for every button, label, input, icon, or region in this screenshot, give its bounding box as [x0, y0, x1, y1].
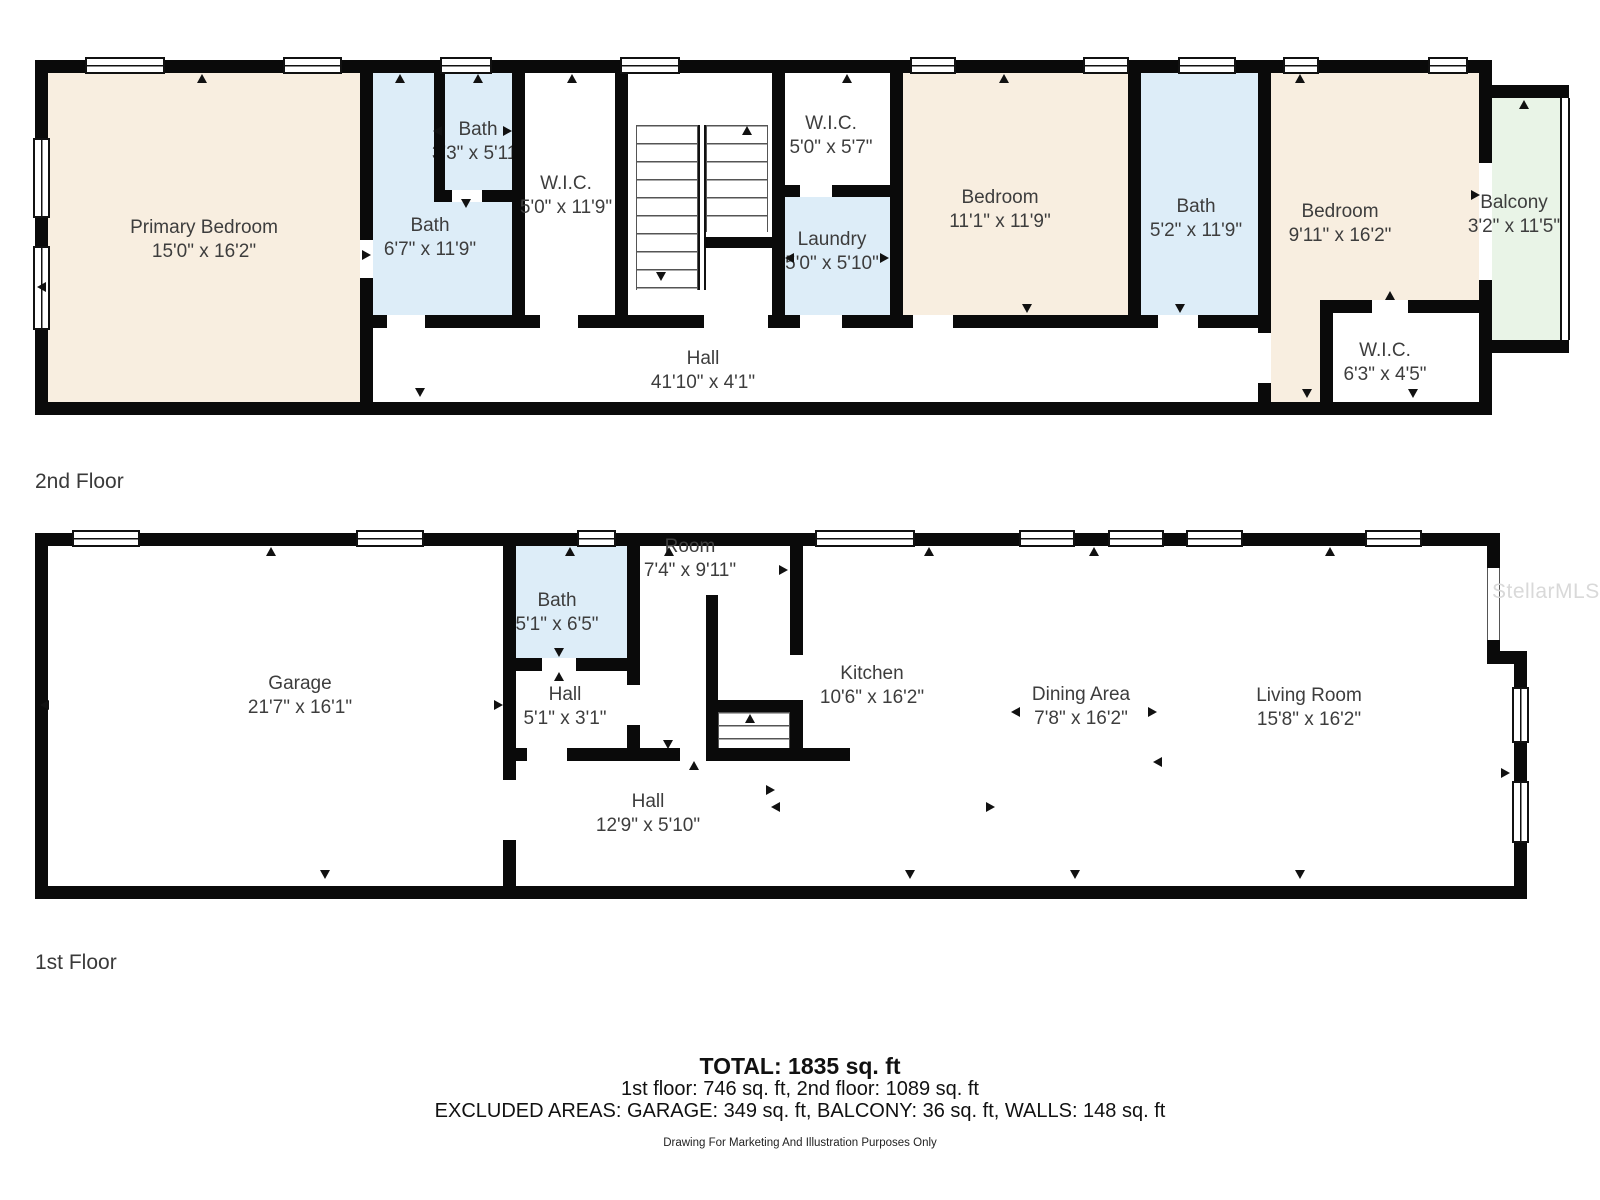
room-dims: 5'0" x 11'9"	[520, 196, 612, 220]
room-name: Bath	[515, 589, 598, 613]
wall	[1492, 340, 1569, 353]
marker-arrow-icon	[494, 700, 503, 710]
room-name: Dining Area	[1032, 683, 1130, 707]
marker-arrow-icon	[1385, 291, 1395, 300]
window	[440, 57, 492, 74]
window	[72, 530, 140, 547]
door-opening	[913, 315, 953, 328]
marker-arrow-icon	[1089, 547, 1099, 556]
marker-arrow-icon	[1471, 190, 1480, 200]
marker-arrow-icon	[320, 870, 330, 879]
marker-arrow-icon	[1153, 757, 1162, 767]
room-label-primary-bedroom: Primary Bedroom15'0" x 16'2"	[130, 216, 278, 264]
marker-arrow-icon	[842, 74, 852, 83]
marker-arrow-icon	[1175, 304, 1185, 313]
wall	[718, 700, 790, 712]
window	[1512, 687, 1529, 743]
door-opening	[790, 655, 803, 700]
room-name: Balcony	[1468, 191, 1560, 215]
marker-arrow-icon	[1325, 547, 1335, 556]
window	[1428, 57, 1468, 74]
marker-arrow-icon	[766, 785, 775, 795]
room-name: Hall	[651, 347, 755, 371]
window	[283, 57, 342, 74]
room-dims: 15'8" x 16'2"	[1256, 708, 1362, 732]
window	[1178, 57, 1236, 74]
door-opening	[800, 185, 832, 197]
marker-arrow-icon	[266, 547, 276, 556]
window	[577, 530, 616, 547]
room-name: Bath	[1150, 195, 1242, 219]
marker-arrow-icon	[663, 740, 673, 749]
marker-arrow-icon	[689, 761, 699, 770]
marker-arrow-icon	[461, 199, 471, 208]
marker-arrow-icon	[362, 250, 371, 260]
marker-arrow-icon	[433, 126, 442, 136]
room-dims: 5'2" x 11'9"	[1150, 219, 1242, 243]
wall	[503, 533, 516, 899]
room-label-bedroom-right: Bedroom9'11" x 16'2"	[1289, 200, 1392, 248]
wall	[35, 533, 1500, 546]
wall	[35, 60, 1492, 73]
marker-arrow-icon	[905, 870, 915, 879]
room-name: Laundry	[785, 228, 879, 252]
window	[910, 57, 956, 74]
wall	[706, 595, 718, 761]
floor-label-2nd: 2nd Floor	[35, 470, 124, 494]
room-dims: 7'8" x 16'2"	[1032, 707, 1130, 731]
room-label-bath-main: Bath6'7" x 11'9"	[384, 214, 476, 262]
marker-arrow-icon	[415, 388, 425, 397]
marker-arrow-icon	[1519, 100, 1529, 109]
wall	[35, 402, 1492, 415]
room-fill-bath-right	[1141, 73, 1258, 315]
room-label-wic-left: W.I.C.5'0" x 11'9"	[520, 172, 612, 220]
marker-arrow-icon	[771, 802, 780, 812]
room-name: W.I.C.	[789, 112, 872, 136]
marker-arrow-icon	[664, 547, 674, 556]
marker-arrow-icon	[785, 253, 794, 263]
wall	[434, 73, 445, 202]
marker-arrow-icon	[473, 74, 483, 83]
room-dims: 9'11" x 16'2"	[1289, 224, 1392, 248]
door-opening	[1158, 315, 1198, 328]
room-label-wic-right: W.I.C.6'3" x 4'5"	[1343, 339, 1426, 387]
room-dims: 3'3" x 5'11"	[432, 142, 524, 166]
marker-arrow-icon	[37, 282, 46, 292]
window	[33, 138, 50, 218]
window	[1019, 530, 1075, 547]
room-name: W.I.C.	[1343, 339, 1426, 363]
room-dims: 5'0" x 5'10"	[785, 252, 879, 276]
window	[815, 530, 915, 547]
room-dims: 6'3" x 4'5"	[1343, 363, 1426, 387]
wall	[1492, 85, 1569, 98]
window	[1283, 57, 1319, 74]
room-label-bath-1st: Bath5'1" x 6'5"	[515, 589, 598, 637]
room-dims: 3'2" x 11'5"	[1468, 215, 1560, 239]
wall	[1128, 60, 1141, 328]
balcony-railing	[1560, 98, 1570, 340]
window	[1186, 530, 1243, 547]
marker-arrow-icon	[1501, 768, 1510, 778]
marker-arrow-icon	[1070, 870, 1080, 879]
stairs-down-arrow-icon	[656, 272, 666, 281]
marker-arrow-icon	[986, 802, 995, 812]
marker-arrow-icon	[1295, 74, 1305, 83]
marker-arrow-icon	[503, 126, 512, 136]
room-dims: 5'1" x 3'1"	[523, 707, 606, 731]
window	[1108, 530, 1164, 547]
room-name: Bedroom	[949, 186, 1050, 210]
room-label-bedroom-mid: Bedroom11'1" x 11'9"	[949, 186, 1050, 234]
wall	[790, 533, 803, 761]
room-label-hall-1st: Hall12'9" x 5'10"	[596, 790, 700, 838]
room-label-wic-mid: W.I.C.5'0" x 5'7"	[789, 112, 872, 160]
window	[1083, 57, 1129, 74]
wall	[35, 886, 1527, 899]
window	[1512, 781, 1529, 843]
window	[620, 57, 680, 74]
marker-arrow-icon	[197, 74, 207, 83]
marker-arrow-icon	[567, 74, 577, 83]
room-dims: 6'7" x 11'9"	[384, 238, 476, 262]
door-opening	[627, 685, 640, 725]
stellar-mls-watermark: StellarMLS	[1492, 580, 1600, 604]
room-dims: 11'1" x 11'9"	[949, 210, 1050, 234]
room-name: Living Room	[1256, 684, 1362, 708]
marker-arrow-icon	[395, 74, 405, 83]
door-opening	[527, 748, 567, 761]
marker-arrow-icon	[999, 74, 1009, 83]
stairs-up-arrow-icon	[745, 714, 755, 723]
room-name: Room	[644, 535, 736, 559]
marker-arrow-icon	[554, 648, 564, 657]
window	[356, 530, 424, 547]
room-name: Primary Bedroom	[130, 216, 278, 240]
marker-arrow-icon	[880, 253, 889, 263]
room-name: Bedroom	[1289, 200, 1392, 224]
staircase-flight	[636, 125, 698, 290]
floor-plan-page: { "watermark": "StellarMLS", "colors": {…	[0, 0, 1600, 1200]
wall	[627, 533, 640, 761]
staircase-flight	[706, 125, 768, 232]
door-opening	[800, 315, 842, 328]
room-label-garage: Garage21'7" x 16'1"	[248, 672, 352, 720]
wall	[35, 60, 48, 415]
floor-label-1st: 1st Floor	[35, 951, 117, 975]
marker-arrow-icon	[554, 672, 564, 681]
wall	[360, 60, 373, 415]
room-name: Kitchen	[820, 662, 924, 686]
room-name: Hall	[523, 683, 606, 707]
room-dims: 21'7" x 16'1"	[248, 696, 352, 720]
room-name: Hall	[596, 790, 700, 814]
marker-arrow-icon	[924, 547, 934, 556]
footer-excluded-areas: EXCLUDED AREAS: GARAGE: 349 sq. ft, BALC…	[0, 1100, 1600, 1123]
room-label-bath-right: Bath5'2" x 11'9"	[1150, 195, 1242, 243]
room-name: Bath	[384, 214, 476, 238]
room-label-dining: Dining Area7'8" x 16'2"	[1032, 683, 1130, 731]
stairs-up-arrow-icon	[742, 126, 752, 135]
marker-arrow-icon	[1011, 707, 1020, 717]
door-opening	[704, 315, 768, 328]
marker-arrow-icon	[565, 547, 575, 556]
marker-arrow-icon	[1148, 707, 1157, 717]
marker-arrow-icon	[40, 700, 49, 710]
room-name: Garage	[248, 672, 352, 696]
wall	[615, 60, 628, 328]
window	[1365, 530, 1422, 547]
wall	[704, 237, 772, 248]
room-name: W.I.C.	[520, 172, 612, 196]
window	[85, 57, 165, 74]
wall	[890, 60, 903, 328]
marker-arrow-icon	[1302, 389, 1312, 398]
room-dims: 41'10" x 4'1"	[651, 371, 755, 395]
room-dims: 15'0" x 16'2"	[130, 240, 278, 264]
room-dims: 5'1" x 6'5"	[515, 613, 598, 637]
entry-door-opening	[1487, 568, 1500, 640]
marker-arrow-icon	[1295, 870, 1305, 879]
wall	[1320, 300, 1333, 402]
room-label-hall-small: Hall5'1" x 3'1"	[523, 683, 606, 731]
door-opening	[503, 780, 516, 840]
door-opening	[680, 748, 706, 761]
footer-total: TOTAL: 1835 sq. ft	[0, 1053, 1600, 1080]
wall	[35, 533, 48, 899]
room-label-kitchen: Kitchen10'6" x 16'2"	[820, 662, 924, 710]
room-dims: 12'9" x 5'10"	[596, 814, 700, 838]
footer-disclaimer: Drawing For Marketing And Illustration P…	[0, 1137, 1600, 1149]
room-label-laundry: Laundry5'0" x 5'10"	[785, 228, 879, 276]
door-opening	[1372, 300, 1408, 313]
door-opening	[387, 315, 425, 328]
room-dims: 5'0" x 5'7"	[789, 136, 872, 160]
room-dims: 7'4" x 9'11"	[644, 559, 736, 583]
marker-arrow-icon	[1408, 389, 1418, 398]
room-dims: 10'6" x 16'2"	[820, 686, 924, 710]
staircase-rail	[698, 125, 706, 290]
room-label-hall-2nd: Hall41'10" x 4'1"	[651, 347, 755, 395]
room-label-living: Living Room15'8" x 16'2"	[1256, 684, 1362, 732]
door-opening	[1258, 333, 1271, 383]
wall	[772, 60, 785, 328]
marker-arrow-icon	[1022, 304, 1032, 313]
door-opening	[540, 315, 578, 328]
room-label-room: Room7'4" x 9'11"	[644, 535, 736, 583]
room-label-balcony: Balcony3'2" x 11'5"	[1468, 191, 1560, 239]
footer-floor-areas: 1st floor: 746 sq. ft, 2nd floor: 1089 s…	[0, 1078, 1600, 1101]
door-opening	[542, 658, 576, 671]
marker-arrow-icon	[779, 565, 788, 575]
